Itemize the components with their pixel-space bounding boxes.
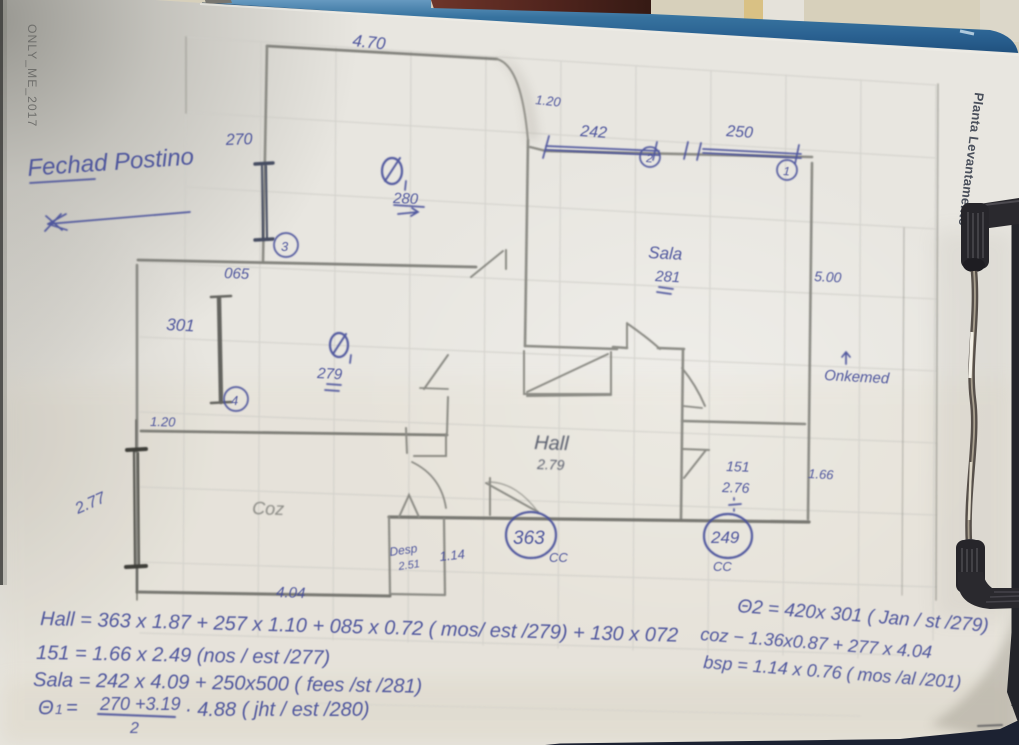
svg-text:2.79: 2.79	[536, 456, 565, 473]
svg-text:250: 250	[725, 123, 754, 142]
svg-text:301: 301	[166, 315, 195, 335]
svg-text:5.00: 5.00	[814, 268, 842, 285]
svg-text:=: =	[66, 697, 78, 719]
svg-text:· 4.88 ( jht / est /280): · 4.88 ( jht / est /280)	[185, 699, 370, 721]
svg-text:1: 1	[783, 164, 791, 178]
svg-text:Coz: Coz	[252, 498, 285, 519]
svg-text:270: 270	[225, 131, 253, 149]
svg-text:Sala: Sala	[648, 243, 683, 264]
svg-text:3: 3	[281, 239, 289, 254]
svg-text:4: 4	[231, 393, 238, 408]
svg-text:2: 2	[645, 151, 654, 166]
svg-text:1.66: 1.66	[808, 466, 835, 482]
svg-text:279: 279	[316, 365, 344, 383]
svg-text:ONLY_ME_2017: ONLY_ME_2017	[25, 24, 39, 127]
svg-text:281: 281	[654, 268, 681, 286]
svg-text:CC: CC	[549, 550, 568, 565]
svg-text:151: 151	[726, 458, 750, 475]
svg-text:2.76: 2.76	[721, 479, 750, 496]
svg-text:280: 280	[392, 190, 419, 208]
svg-text:Hall: Hall	[534, 432, 570, 455]
svg-text:249: 249	[710, 528, 740, 547]
svg-text:065: 065	[224, 265, 250, 283]
svg-text:363: 363	[513, 528, 545, 549]
svg-text:CC: CC	[713, 559, 732, 574]
svg-text:4.04: 4.04	[276, 584, 306, 602]
svg-text:4.70: 4.70	[352, 31, 387, 53]
svg-text:1.20: 1.20	[150, 414, 176, 429]
svg-text:1: 1	[55, 701, 63, 717]
svg-text:1.20: 1.20	[535, 92, 562, 110]
svg-text:2: 2	[129, 720, 139, 737]
svg-text:242: 242	[579, 123, 608, 142]
svg-text:270 +3.19: 270 +3.19	[99, 694, 181, 714]
svg-text:1.14: 1.14	[439, 546, 466, 564]
svg-text:Θ: Θ	[38, 697, 54, 719]
svg-text:Onkemed: Onkemed	[824, 367, 890, 387]
